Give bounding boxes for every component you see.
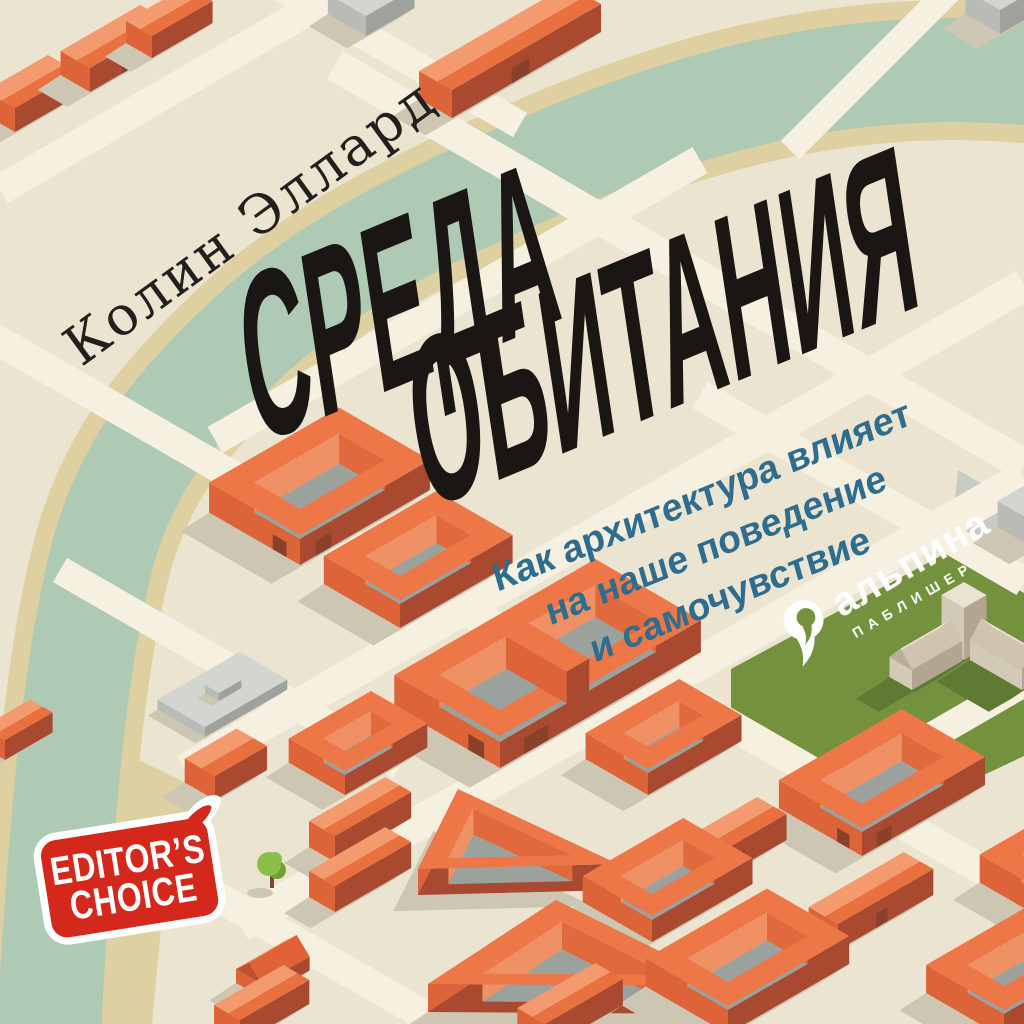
book-cover: Колин Эллард СРЕДА ОБИТАНИЯ Как архитект…: [0, 0, 1024, 1024]
